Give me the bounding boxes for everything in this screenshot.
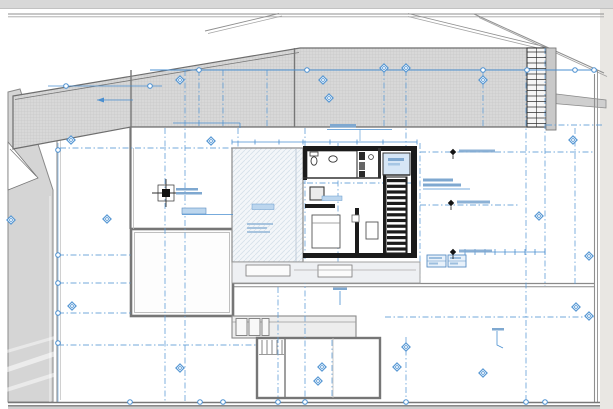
balcony-planter	[246, 265, 290, 276]
unit-stair-tread	[387, 213, 406, 216]
dimension-node-circle	[573, 68, 578, 73]
dimension-node-circle	[481, 68, 486, 73]
unit-stair-tread	[387, 236, 406, 239]
dimension-node-circle	[56, 311, 61, 316]
dimension-node-circle	[404, 400, 409, 405]
unit-stair-tread	[387, 208, 406, 211]
unit-wall-bottom	[303, 253, 417, 258]
furniture-desk	[366, 222, 378, 239]
annotation-text-bar	[247, 231, 270, 233]
mini-table-text-bar	[450, 263, 458, 265]
roof-stair-side-wall	[546, 48, 556, 130]
dimension-node-circle	[148, 84, 153, 89]
mini-table-text-bar	[429, 257, 442, 259]
elevation-marker-label-bar	[459, 150, 495, 153]
survey-crosshair-center	[162, 189, 170, 197]
toilet-tank	[310, 152, 318, 156]
furniture-nightstand	[352, 215, 359, 222]
unit-wall-left	[303, 146, 307, 180]
unit-stair-tread	[387, 179, 406, 182]
stairwell-label-bar	[388, 158, 404, 161]
unit-wall-right	[411, 146, 417, 258]
planter-box	[262, 319, 269, 336]
wc-basin	[369, 155, 374, 160]
unit-stair-tread	[387, 196, 406, 199]
dimension-node-circle	[56, 148, 61, 153]
unit-wall-wc	[378, 148, 381, 178]
page-margin-right	[600, 8, 613, 409]
annotation-label-box	[322, 196, 342, 201]
annotation-text-bar	[176, 192, 202, 195]
elevation-marker-label-bar	[457, 201, 490, 204]
sink-basin	[329, 156, 337, 162]
annotation-text-bar	[492, 328, 504, 331]
dimension-node-circle	[524, 400, 529, 405]
annotation-text-bar	[333, 288, 347, 291]
annotation-label-box	[182, 208, 206, 214]
unit-stair-tread	[387, 219, 406, 222]
dimension-node-circle	[276, 400, 281, 405]
shower-fixture	[359, 162, 365, 170]
dimension-node-circle	[198, 400, 203, 405]
annotation-text-bar	[423, 179, 453, 182]
furniture-bed	[312, 215, 340, 248]
dimension-node-circle	[64, 84, 69, 89]
floor-plan-drawing	[0, 0, 613, 409]
dimension-node-circle	[221, 400, 226, 405]
unit-stair-tread	[387, 202, 406, 205]
planter-box	[236, 319, 247, 336]
elevation-marker-label-bar	[459, 250, 492, 253]
dimension-node-circle	[303, 400, 308, 405]
unit-stair-tread	[387, 242, 406, 245]
plan-viewer	[0, 0, 613, 409]
dimension-node-circle	[56, 253, 61, 258]
shower-fixture	[359, 152, 365, 160]
dimension-node-circle	[305, 68, 310, 73]
unit-wall-top	[303, 146, 417, 151]
stairwell-label-bar	[388, 163, 400, 166]
dimension-node-circle	[543, 400, 548, 405]
dimension-node-circle	[525, 68, 530, 73]
mini-table-text-bar	[429, 263, 438, 265]
unit-stair-tread	[387, 230, 406, 233]
balcony-planter	[318, 265, 352, 277]
annotation-label-box	[252, 204, 274, 210]
unit-stair-tread	[387, 190, 406, 193]
unit-stair-tread	[387, 247, 406, 250]
shower-fixture	[359, 171, 365, 177]
unit-stair-tread	[387, 225, 406, 228]
planter-box	[249, 319, 260, 336]
unit-stair-tread	[387, 185, 406, 188]
top-chrome-bar	[0, 0, 613, 8]
dimension-node-circle	[592, 68, 597, 73]
patio-structure	[131, 229, 233, 316]
dimension-node-circle	[56, 281, 61, 286]
unit-wall-bedroom	[305, 204, 335, 208]
dimension-node-circle	[197, 68, 202, 73]
annotation-text-bar	[330, 124, 356, 128]
mini-table-text-bar	[450, 257, 461, 259]
annotation-text-bar	[423, 184, 461, 187]
dimension-node-circle	[56, 341, 61, 346]
dimension-node-circle	[128, 400, 133, 405]
annotation-text-bar	[247, 227, 267, 229]
annotation-text-bar	[247, 223, 273, 225]
plan-root	[0, 0, 613, 409]
toilet-bowl	[311, 157, 317, 165]
annotation-text-bar	[176, 188, 198, 191]
